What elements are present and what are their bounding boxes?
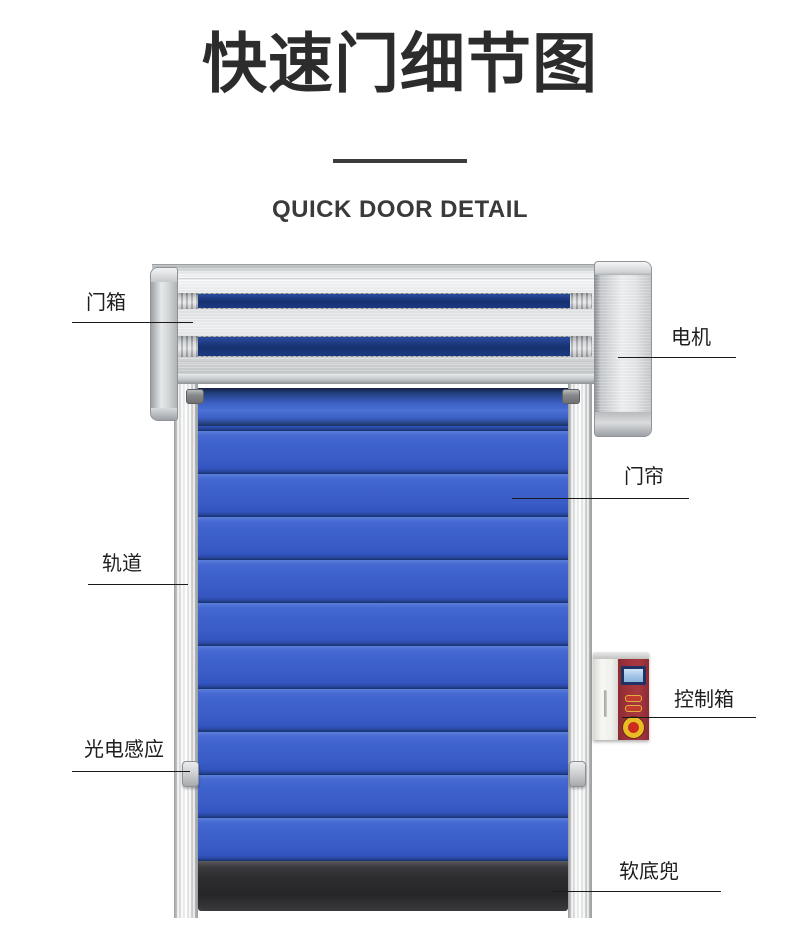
emergency-stop-button [623,717,644,738]
header-slot-lower [176,336,592,357]
page: 快速门细节图 QUICK DOOR DETAIL [0,0,800,952]
callout-track-line [88,584,188,585]
callout-curtain-label: 门帘 [624,466,664,488]
control-box-cap [593,652,649,659]
header-seam [152,361,598,363]
soft-bottom-bag [198,861,568,911]
control-box-panel [618,659,649,740]
control-box-door [593,659,618,740]
control-indicator-button-1 [625,695,642,702]
callout-track-label: 轨道 [102,553,142,575]
callout-bottom-bag-line [553,891,721,892]
photo-sensor-left [182,761,199,787]
photo-sensor-right [569,761,586,787]
track-right-rail [568,384,592,918]
header-slot-upper-insert [198,294,570,308]
callout-bottom-bag-label: 软底兜 [619,861,679,883]
header-bottom-lip [152,374,598,384]
title-divider [333,159,467,163]
curtain-bracket-right [562,389,580,404]
door-box-header [152,264,598,384]
curtain-bracket-left [186,389,204,404]
callout-door-box-label: 门箱 [86,292,126,314]
control-screen-display [624,669,643,682]
track-left-rail [174,384,198,918]
header-top-seam [152,278,598,280]
curtain-top-roll [198,388,568,426]
header-left-cap [150,267,178,421]
callout-curtain-line [512,498,689,499]
control-box-handle [604,690,607,717]
control-indicator-button-2 [625,705,642,712]
header-slot-lower-insert [198,337,570,356]
door-curtain [198,388,568,862]
page-subtitle: QUICK DOOR DETAIL [0,196,800,224]
control-box [593,652,649,740]
motor-housing-top-cap [595,262,651,275]
callout-motor-label: 电机 [671,327,711,349]
motor-housing [594,261,652,437]
motor-housing-bottom-band [595,412,651,436]
callout-door-box-line [72,322,193,323]
callout-control-box-line [622,717,756,718]
page-title: 快速门细节图 [0,30,800,98]
callout-photo-sensor-label: 光电感应 [84,739,164,761]
callout-motor-line [618,357,736,358]
header-slot-upper [176,293,592,309]
callout-photo-sensor-line [72,771,190,772]
control-screen [621,666,646,685]
callout-control-box-label: 控制箱 [674,689,734,711]
